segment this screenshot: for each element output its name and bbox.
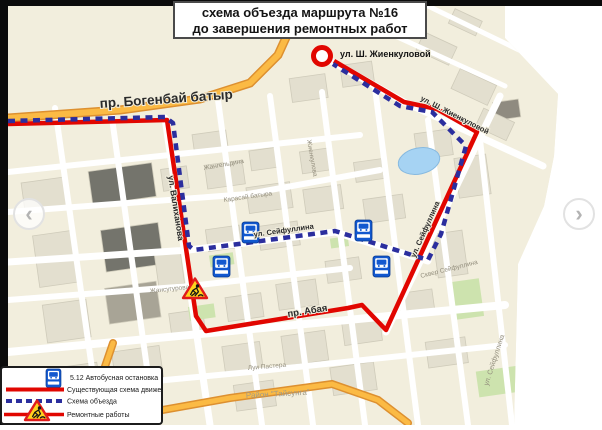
bus-stop-icon — [355, 220, 372, 241]
map-title-box: схема объезда маршрута №16 до завершения… — [173, 1, 427, 39]
bus-stop-icon — [373, 256, 390, 277]
carousel-next-button[interactable]: › — [563, 198, 595, 230]
route-terminal-marker — [314, 48, 331, 65]
roadworks-sign-icon — [25, 401, 49, 421]
bus-stop-icon — [213, 256, 230, 277]
chevron-left-icon: ‹ — [25, 203, 32, 225]
left-black-bar — [0, 0, 8, 425]
legend-box: 5.12 Автобусная остановка Существующая с… — [0, 366, 163, 425]
carousel-prev-button[interactable]: ‹ — [13, 198, 45, 230]
map-title-line1: схема объезда маршрута №16 — [175, 5, 425, 21]
bus-stop-sign-icon — [46, 369, 61, 387]
street-label-zhienkulova-top: ул. Ш. Жиенкуловой — [340, 49, 431, 59]
legend-label-detour-route: Схема объезда — [67, 398, 117, 406]
legend-label-roadworks: Ремонтные работы — [67, 411, 130, 419]
legend-content: 5.12 Автобусная остановка Существующая с… — [2, 368, 161, 423]
route-map-image: Жангельдина Карасай батыра Жиенкулова Ск… — [8, 6, 558, 425]
map-title-line2: до завершения ремонтных работ — [175, 21, 425, 37]
chevron-right-icon: › — [575, 203, 582, 225]
legend-label-bus-stop: 5.12 Автобусная остановка — [70, 374, 158, 382]
legend-label-existing-route: Существующая схема движения — [67, 387, 161, 394]
route-map: Жангельдина Карасай батыра Жиенкулова Ск… — [8, 6, 558, 425]
